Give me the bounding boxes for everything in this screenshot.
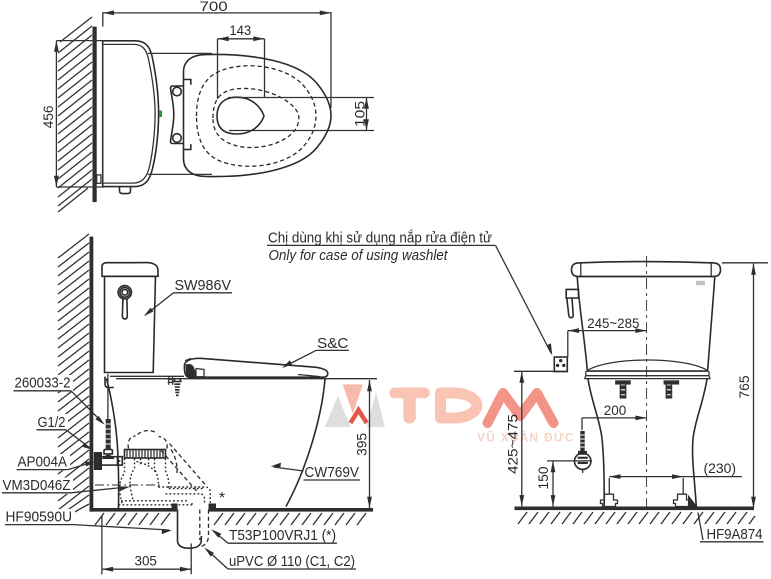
svg-text:VM3D046Z: VM3D046Z (3, 477, 71, 494)
svg-text:HF90590U: HF90590U (6, 509, 73, 526)
svg-text:SW986V: SW986V (175, 277, 232, 294)
svg-text:G1/2: G1/2 (38, 414, 66, 431)
svg-text:395: 395 (353, 433, 369, 456)
svg-text:260033-2: 260033-2 (15, 374, 71, 391)
svg-text:305: 305 (134, 552, 157, 568)
svg-text:200: 200 (604, 402, 627, 418)
svg-text:CW769V: CW769V (305, 464, 360, 481)
svg-text:HF9A874: HF9A874 (707, 526, 763, 543)
svg-text:uPVC Ø 110 (C1, C2): uPVC Ø 110 (C1, C2) (229, 553, 355, 570)
svg-text:VŨ XUÂN ĐỨC: VŨ XUÂN ĐỨC (477, 432, 575, 445)
svg-text:(230): (230) (704, 460, 737, 476)
svg-text:150: 150 (535, 466, 551, 489)
svg-text:T53P100VRJ1 (*): T53P100VRJ1 (*) (229, 527, 336, 544)
svg-text:765: 765 (736, 375, 752, 398)
svg-text:456: 456 (40, 105, 56, 128)
svg-text:105: 105 (351, 101, 367, 127)
svg-text:S&C: S&C (317, 335, 349, 352)
svg-text:143: 143 (229, 22, 251, 38)
svg-text:Only for case of using washlet: Only for case of using washlet (269, 247, 449, 264)
svg-text:245~285: 245~285 (587, 315, 639, 331)
svg-text:Chị dùng khị sử dụng nắp rửa đ: Chị dùng khị sử dụng nắp rửa điện tử (268, 229, 492, 246)
svg-text:*: * (219, 490, 225, 507)
svg-text:AP004A: AP004A (18, 454, 68, 471)
svg-text:425~475: 425~475 (504, 414, 520, 474)
svg-text:700: 700 (200, 0, 228, 14)
